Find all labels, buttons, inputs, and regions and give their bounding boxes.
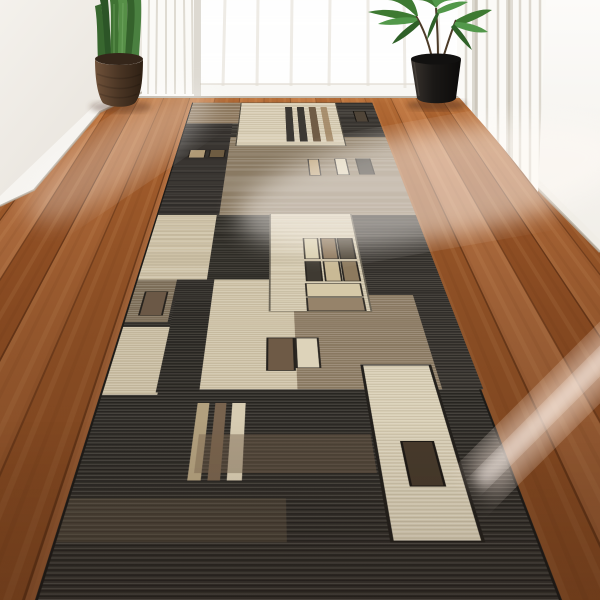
bottom-vignette xyxy=(0,0,600,600)
interior-photo xyxy=(0,0,600,600)
